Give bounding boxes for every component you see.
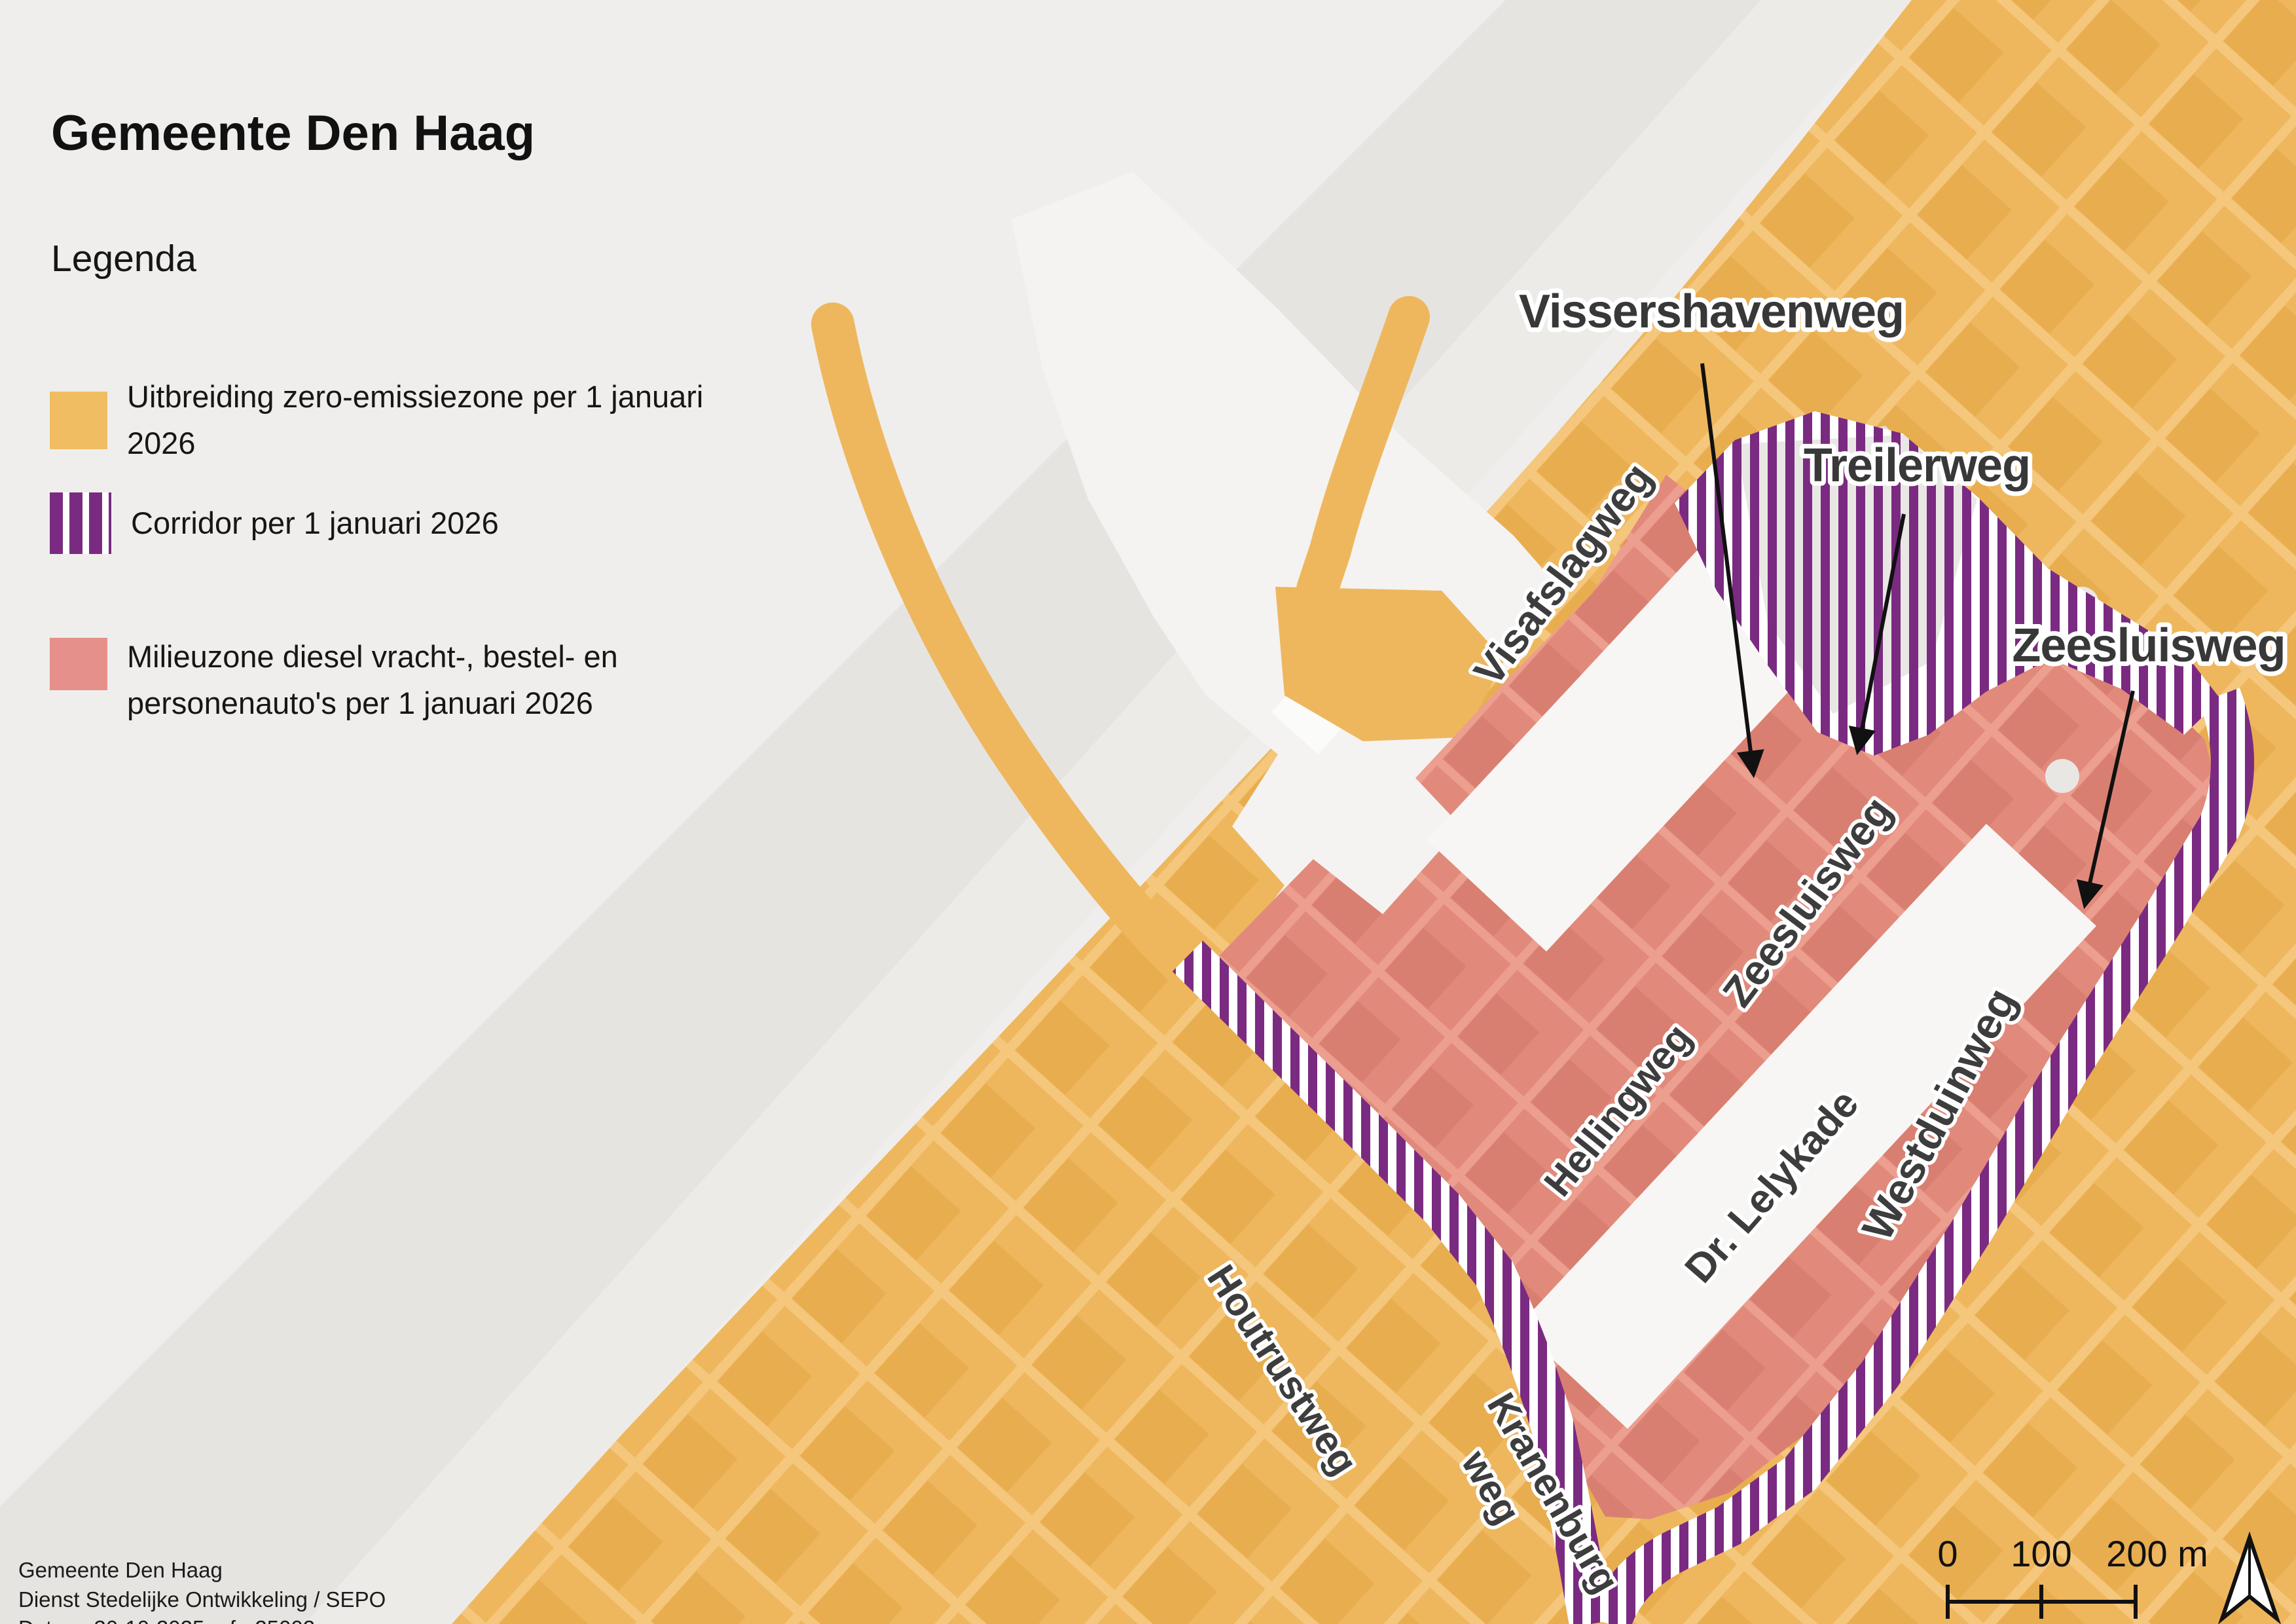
attribution-line-1: Gemeente Den Haag [18,1556,386,1585]
annotation-label-zeesluisweg: Zeesluisweg [2012,619,2285,672]
legend-item-corridor: Corridor per 1 januari 2026 [50,492,499,554]
legend-item-label: Uitbreiding zero-emissiezone per 1 janua… [127,374,749,466]
scale-label-100: 100 [2011,1533,2071,1574]
legend-swatch-corridor-stripes [50,492,111,554]
scale-label-0: 0 [1937,1533,1958,1574]
legend-item-label: Milieuzone diesel vracht-, bestel- en pe… [127,634,749,726]
map: Visafslagweg Zeesluisweg Hellingweg Dr. … [0,0,2296,1624]
legend-heading: Legenda [51,237,196,280]
storage-tank [2045,759,2079,793]
attribution: Gemeente Den Haag Dienst Stedelijke Ontw… [18,1556,386,1624]
map-canvas: Visafslagweg Zeesluisweg Hellingweg Dr. … [0,0,2296,1624]
attribution-line-3: Datum: 30-10-2025 refnr25002 [18,1614,386,1624]
annotation-label-treilerweg: Treilerweg [1804,439,2030,492]
annotation-label-vissershavenweg: Vissershavenweg [1519,286,1904,338]
map-title: Gemeente Den Haag [51,105,535,162]
scale-label-200m: 200 m [2106,1533,2208,1574]
legend-item-label: Corridor per 1 januari 2026 [131,500,499,547]
legend-swatch-orange [50,392,107,449]
legend-item-zero-emission: Uitbreiding zero-emissiezone per 1 janua… [50,374,749,466]
legend-swatch-red [50,638,107,690]
legend-item-milieuzone: Milieuzone diesel vracht-, bestel- en pe… [50,634,749,726]
attribution-line-2: Dienst Stedelijke Ontwikkeling / SEPO [18,1585,386,1615]
